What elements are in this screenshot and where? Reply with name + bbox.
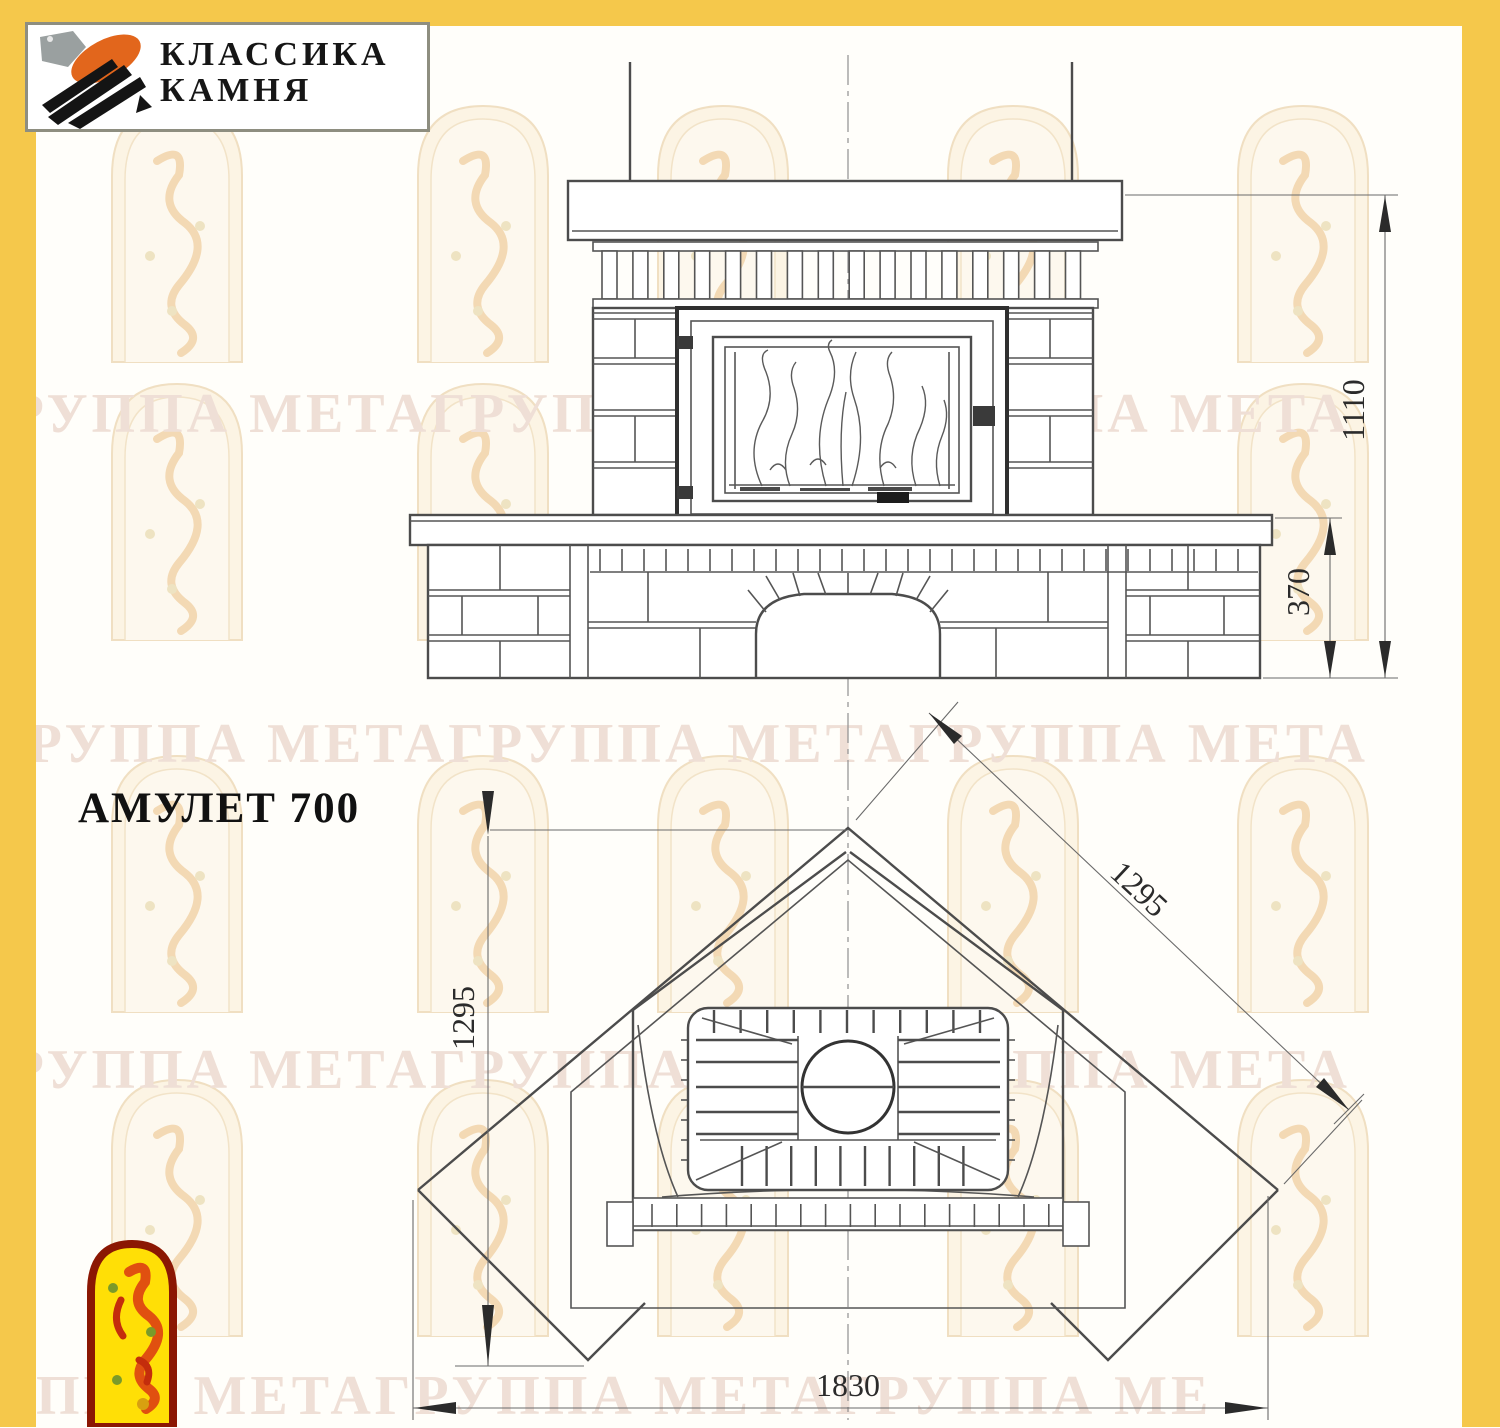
logo-stones-icon [28, 25, 158, 129]
fireplace-technical-drawing: 1110 370 [0, 0, 1500, 1427]
door-handle [973, 406, 995, 426]
dentil-band [602, 251, 1081, 299]
dim-front-width: 1830 [816, 1367, 880, 1403]
firebox-insert [677, 308, 1007, 536]
insert-plan [688, 1008, 1008, 1190]
air-vent [877, 492, 909, 503]
company-logo: КЛАССИКА КАМНЯ [25, 22, 430, 132]
hinge-icon [677, 336, 693, 349]
bench-base [410, 515, 1272, 678]
dim-side-left: 1295 [445, 986, 481, 1050]
jester-badge [87, 1240, 177, 1427]
page-frame-right [1462, 0, 1500, 1427]
model-title: АМУЛЕТ 700 [78, 784, 360, 833]
logo-text-line1: КЛАССИКА [160, 37, 390, 73]
dim-overall-height: 1110 [1335, 379, 1371, 441]
logo-text-line2: КАМНЯ [160, 73, 390, 109]
dim-side-right: 1295 [1104, 854, 1175, 924]
bench-top-slab [410, 515, 1272, 545]
dim-hearth-height: 370 [1280, 568, 1316, 616]
hinge-icon [677, 486, 693, 499]
page-frame-left [0, 0, 36, 1427]
plan-view: 1295 1295 1830 [413, 702, 1364, 1420]
